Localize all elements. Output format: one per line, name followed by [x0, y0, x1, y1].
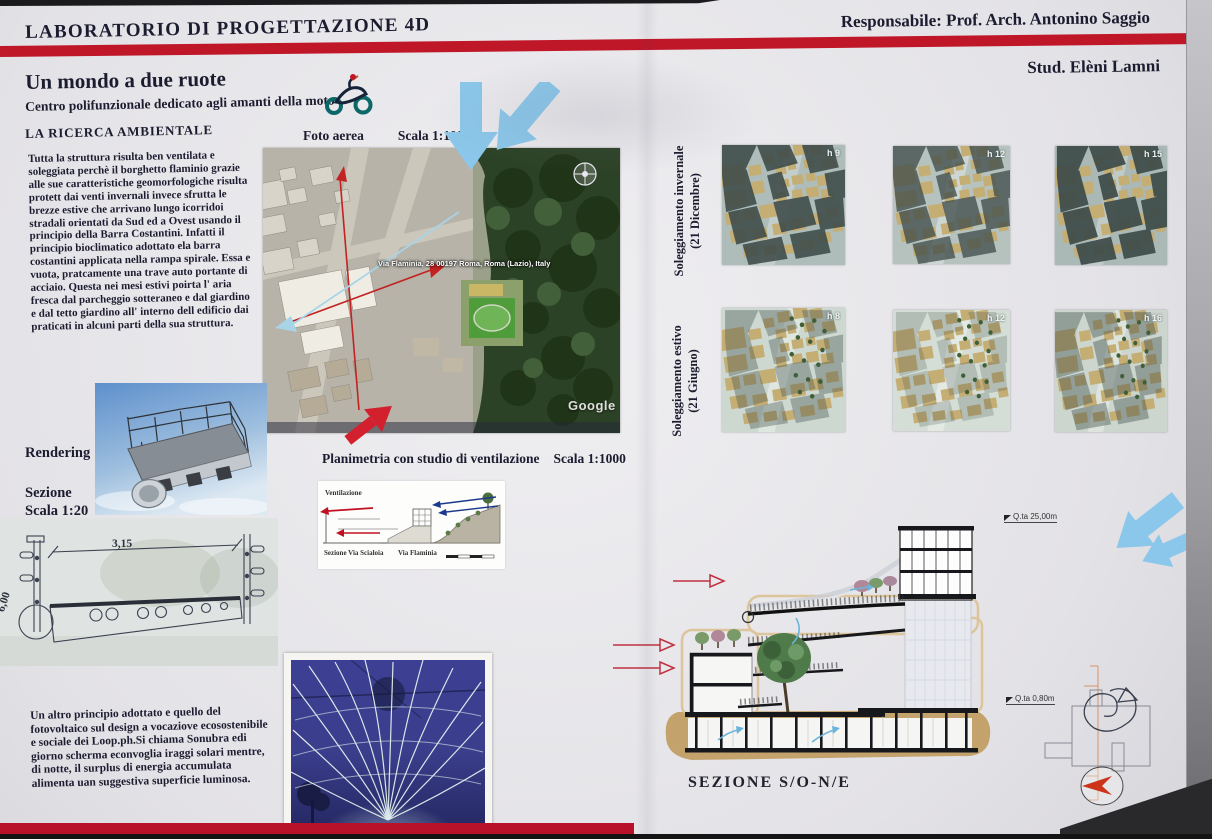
research-heading: LA RICERCA AMBIENTALE — [25, 122, 213, 142]
lab-title: LABORATORIO DI PROGETTAZIONE 4D — [25, 14, 430, 44]
sun-study-winter-2: h 12 — [893, 146, 1010, 264]
hour-label: h 15 — [1144, 149, 1162, 159]
section-title: SEZIONE S/O-N/E — [688, 774, 851, 792]
rendering-label: Rendering — [25, 445, 90, 462]
hour-label: h 12 — [987, 313, 1005, 323]
hour-label: h 12 — [987, 149, 1005, 159]
dimension-width: 3,15 — [112, 538, 132, 550]
north-arrow-icon — [1081, 767, 1123, 805]
sun-study-summer-2: h 12 — [893, 310, 1010, 431]
quota-flag-icon — [1006, 697, 1013, 703]
hour-label: h 16 — [1144, 313, 1162, 323]
section-1-20-drawing — [0, 518, 278, 666]
foto-aerea-label: Foto aerea — [303, 128, 364, 144]
research-paragraph: Tutta la struttura risulta ben ventilata… — [28, 149, 257, 334]
summer-study-label: Soleggiamento estivo(21 Giugno) — [669, 301, 707, 461]
map-address-label: Via Flaminia, 28 00197 Roma, Roma (Lazio… — [378, 259, 550, 268]
red-arrow-icon — [338, 400, 400, 448]
rendering-image — [95, 383, 267, 515]
planimetria-scale: Scala 1:1000 — [554, 451, 626, 467]
google-watermark: Google — [568, 398, 616, 413]
student-name: Stud. Elèni Lamni — [900, 56, 1160, 80]
hour-label: h 9 — [827, 148, 840, 158]
project-subtitle: Centro polifunzionale dedicato agli aman… — [25, 93, 335, 115]
photovoltaic-paragraph: Un altro principio adottato e quello del… — [30, 705, 270, 792]
quota-flag-icon — [1004, 515, 1011, 521]
ventilazione-label: Ventilazione — [325, 489, 362, 497]
professor-name: Responsabile: Prof. Arch. Antonino Saggi… — [700, 8, 1150, 34]
sun-study-winter-3: h 15 — [1055, 146, 1167, 265]
photo-top-edge — [0, 0, 720, 6]
hour-label: h 8 — [827, 311, 840, 321]
project-title: Un mondo a due ruote — [25, 66, 226, 94]
bottom-red-stripe — [0, 823, 634, 834]
poster-crease — [636, 0, 658, 839]
wall-edge — [1186, 0, 1212, 839]
poster-photo: LABORATORIO DI PROGETTAZIONE 4D Responsa… — [0, 0, 1212, 839]
quota-top-label: Q.ta 25,00m — [1004, 512, 1057, 523]
street-label-scialoia: Sezione Via Scialoia — [324, 549, 384, 557]
photo-bottom-edge — [0, 834, 1212, 839]
spiral-sketch — [1040, 658, 1172, 808]
sun-study-summer-3: h 16 — [1055, 310, 1167, 432]
motorcycle-icon — [322, 72, 378, 116]
sun-study-winter-1: h 9 — [722, 145, 845, 265]
aerial-photo — [263, 148, 620, 433]
sezione-label: Sezione — [25, 485, 72, 502]
building-section-drawing — [600, 500, 1050, 800]
sonumbra-photo — [284, 653, 492, 831]
photo-shadow — [430, 55, 760, 175]
sun-study-summer-1: h 8 — [722, 308, 845, 432]
planimetria-label: Planimetria con studio di ventilazione — [322, 451, 540, 467]
street-label-flaminia: Via Flaminia — [398, 549, 437, 557]
